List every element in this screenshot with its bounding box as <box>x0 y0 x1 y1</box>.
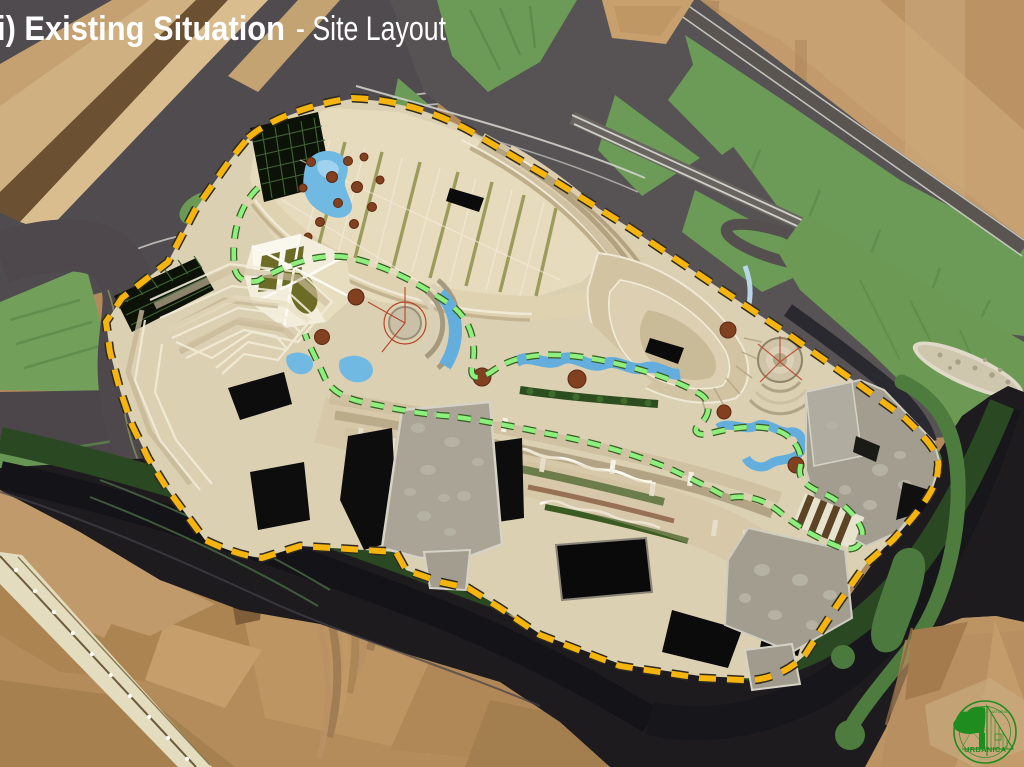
svg-text:- Site Layout: - Site Layout <box>296 10 446 48</box>
svg-text:i) Existing Situation: i) Existing Situation <box>0 10 285 48</box>
svg-text:SUSTAINABLE NATURAL: SUSTAINABLE NATURAL <box>962 709 1010 714</box>
svg-text:· · · · ·: · · · · · <box>979 757 990 762</box>
svg-text:URBANICA: URBANICA <box>964 745 1007 754</box>
